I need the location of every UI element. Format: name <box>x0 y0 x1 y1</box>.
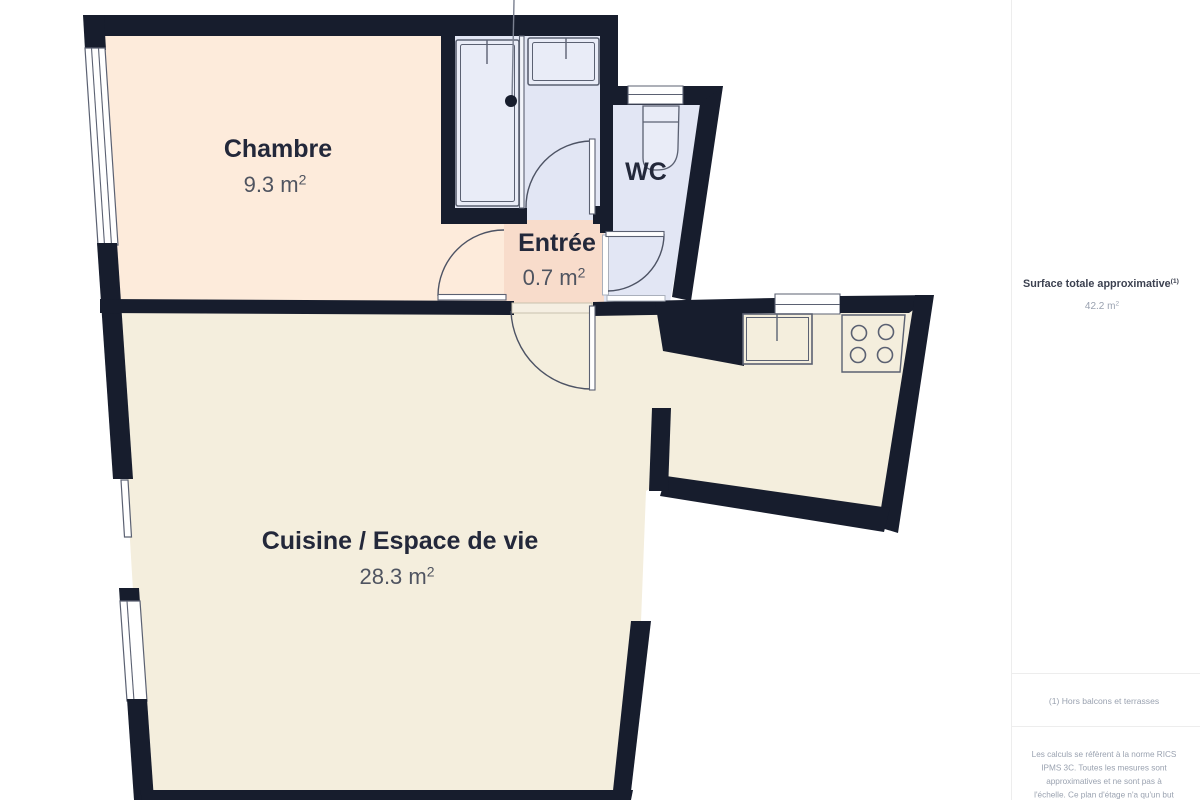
svg-text:Entrée: Entrée <box>518 229 596 257</box>
svg-text:IPMS 3C. Toutes les mesures so: IPMS 3C. Toutes les mesures sont <box>1041 764 1167 773</box>
svg-text:WC: WC <box>625 158 667 186</box>
svg-text:l'échelle. Ce plan d'étage n'a: l'échelle. Ce plan d'étage n'a qu'un but <box>1034 791 1174 800</box>
svg-text:9.3 m2: 9.3 m2 <box>244 171 307 197</box>
svg-text:0.7 m2: 0.7 m2 <box>523 264 586 290</box>
svg-text:approximatives et ne sont pas: approximatives et ne sont pas à <box>1046 777 1162 786</box>
svg-text:Cuisine / Espace de vie: Cuisine / Espace de vie <box>262 527 539 555</box>
svg-text:Les calculs se réfèrent à la n: Les calculs se réfèrent à la norme RICS <box>1032 750 1177 759</box>
svg-text:42.2 m2: 42.2 m2 <box>1085 301 1120 313</box>
svg-text:(1) Hors balcons et terrasses: (1) Hors balcons et terrasses <box>1049 696 1159 706</box>
svg-text:Chambre: Chambre <box>224 135 332 163</box>
svg-text:Surface totale approximative(1: Surface totale approximative(1) <box>1023 278 1179 290</box>
svg-text:28.3 m2: 28.3 m2 <box>359 563 434 589</box>
